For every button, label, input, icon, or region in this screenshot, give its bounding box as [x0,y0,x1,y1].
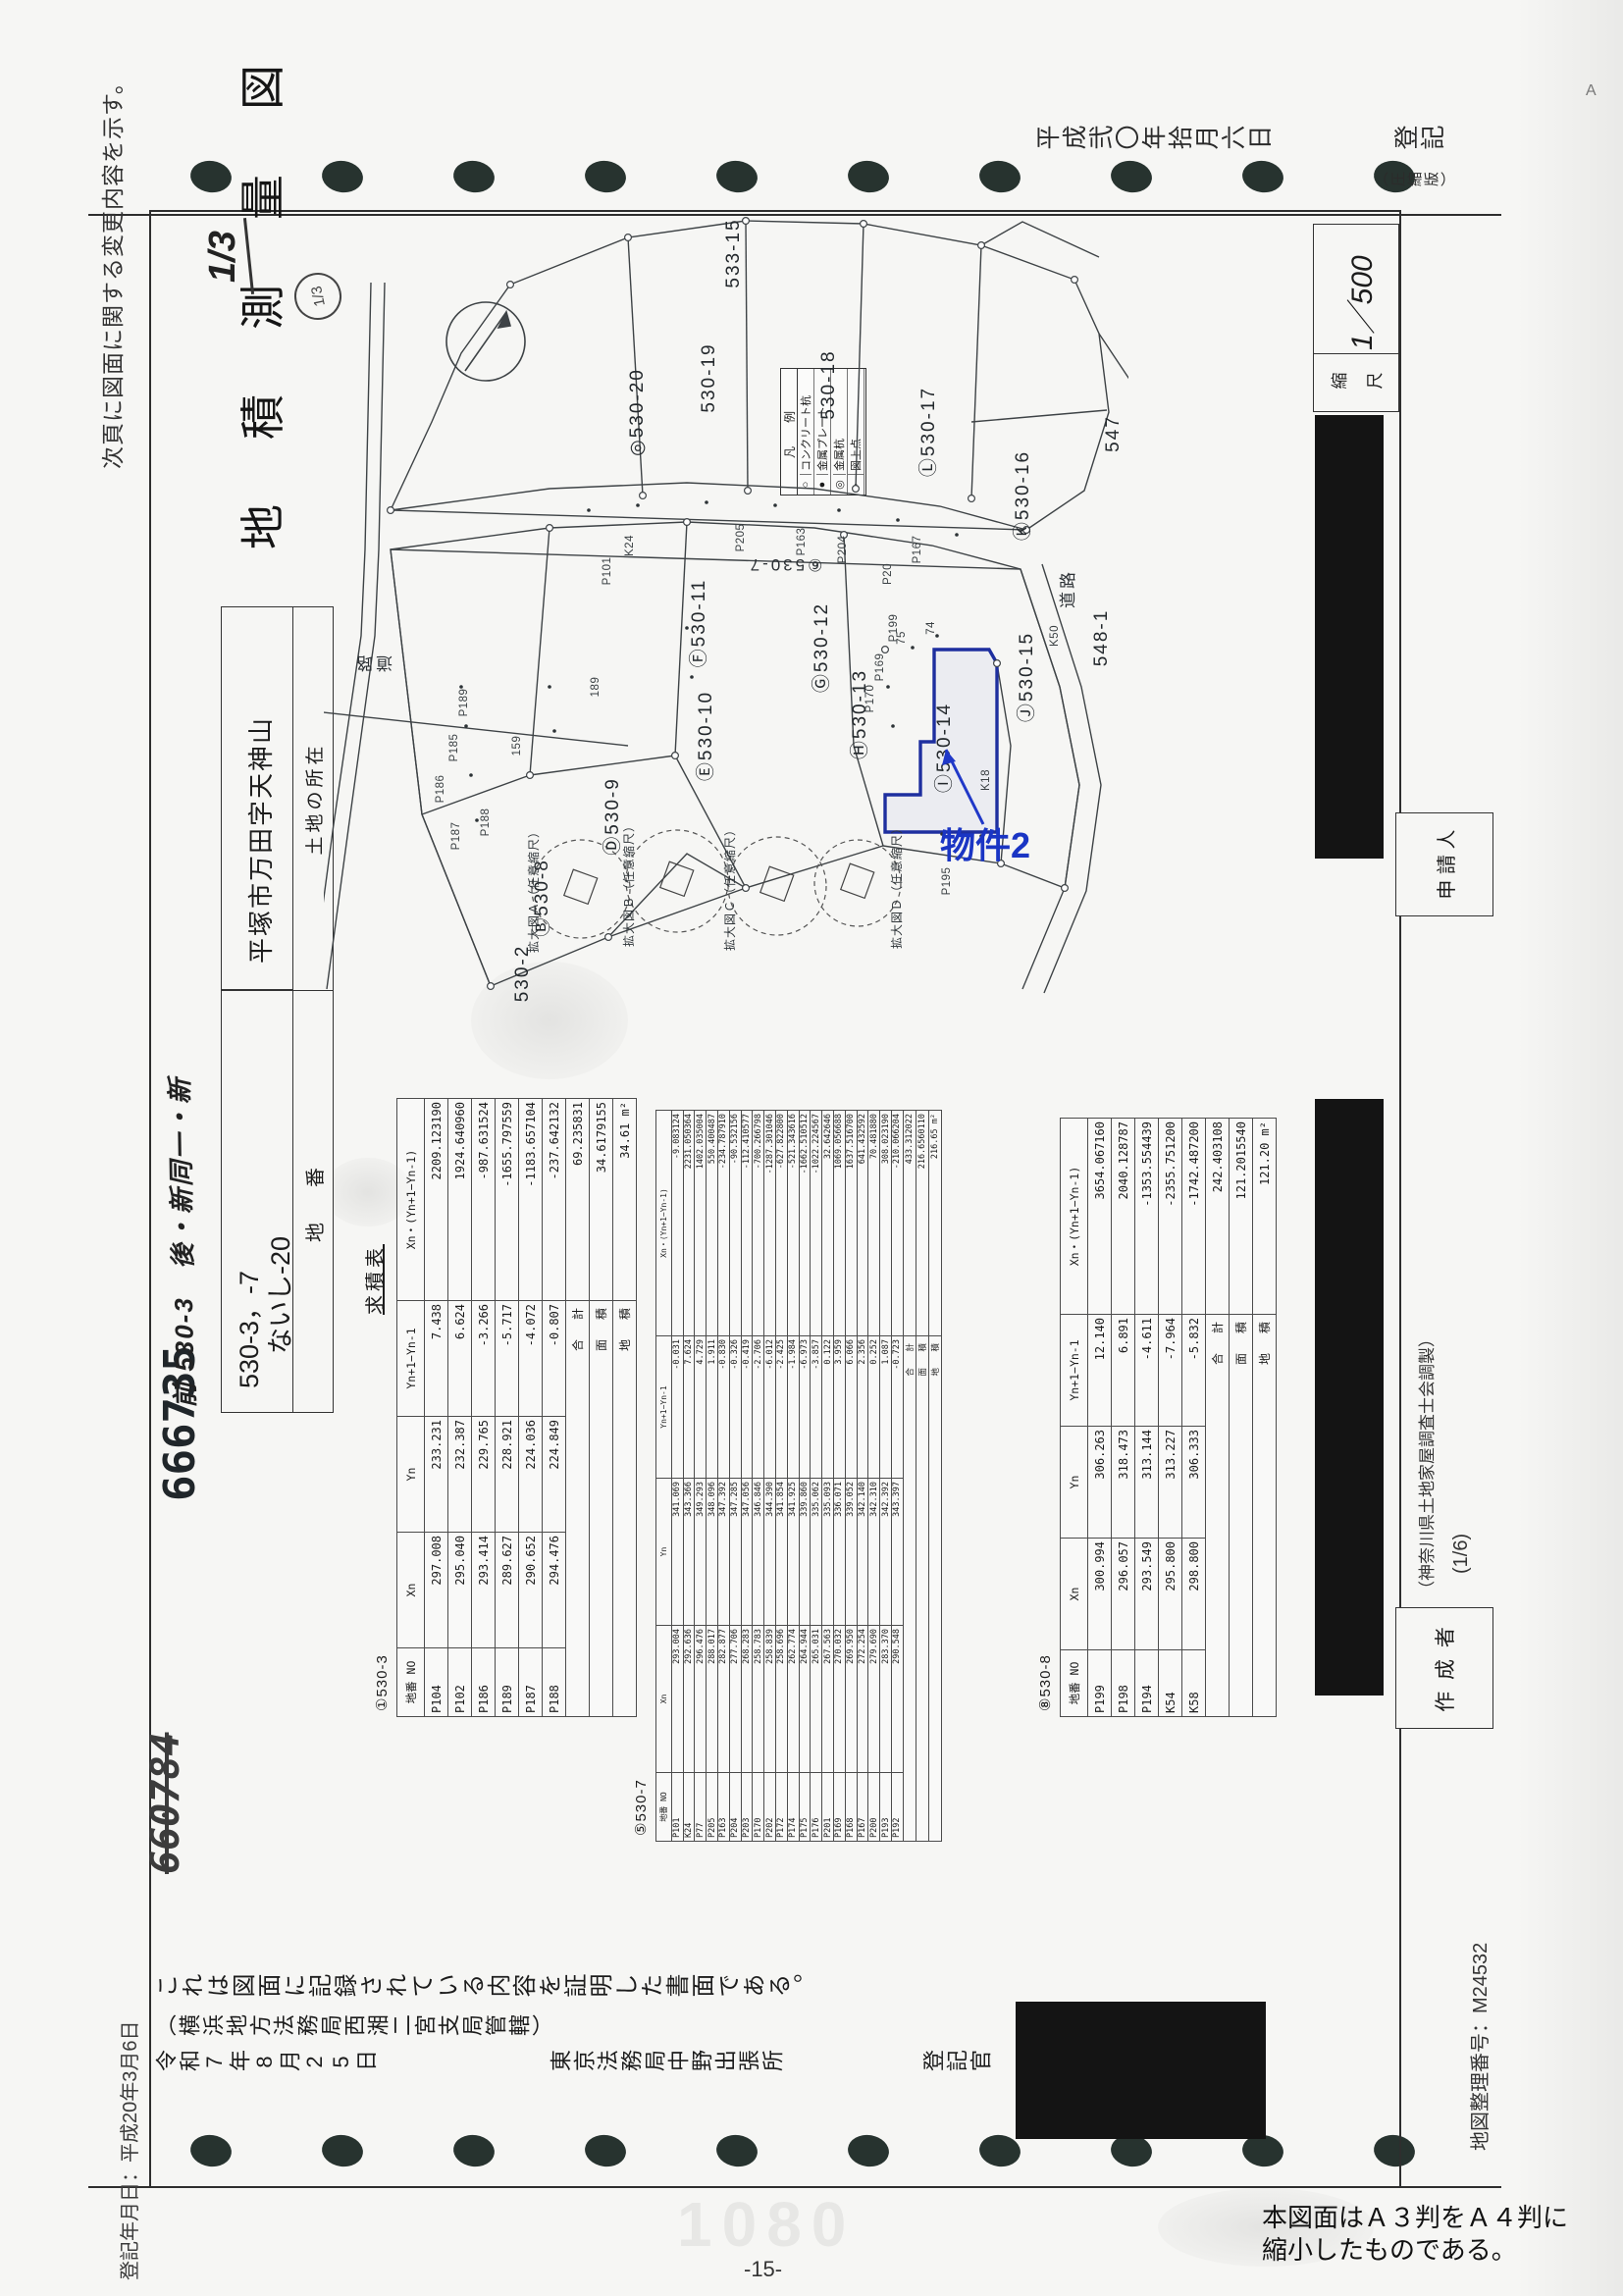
coordinate-value: 348.096 [707,1479,718,1626]
old-drawing-number: 660784 [143,1733,188,1875]
registration-date-note: 登記年月日：平成20年3月6日 [114,2021,142,2281]
coordinate-value: 342.140 [857,1479,868,1626]
map-label: P204 [837,535,849,563]
map-label: 530-19 [699,342,719,412]
coordinate-value: 0.252 [868,1336,880,1479]
stamp-toki: 登記 [1393,122,1462,157]
sum-label: 合 計 [1206,1315,1230,1717]
point-name: P175 [799,1773,811,1842]
certificate-office: 東京法務局中野出張所 [550,2047,903,2078]
coordinate-value: 339.860 [799,1479,811,1626]
coordinate-value: -0.723 [891,1336,903,1479]
bukken-label: 物件2 [940,825,1030,865]
coordinate-value: 2040.128787 [1112,1119,1135,1315]
redaction-officer-name [1016,2002,1266,2139]
coordinate-value: 7.438 [425,1301,448,1417]
point-name: K58 [1182,1650,1206,1717]
coordinate-value: 293.414 [472,1533,496,1648]
map-label: K24 [624,535,636,556]
map-label: P170 [864,685,876,713]
coordinate-value: -1742.487200 [1182,1119,1206,1315]
coordinate-value: 279.690 [868,1626,880,1773]
page-number: -15- [744,2257,782,2282]
coordinate-value: 342.310 [868,1479,880,1626]
coordinate-value: 641.432592 [857,1111,868,1336]
enlargement-circle [626,830,728,932]
point-name: P198 [1112,1650,1135,1717]
coordinate-value: 296.057 [1112,1539,1135,1650]
coordinate-value: -1287.301046 [764,1111,776,1336]
coordinate-value: 336.071 [833,1479,845,1626]
coordinate-value: 293.549 [1135,1539,1159,1650]
coordinate-value: 343.366 [683,1479,695,1626]
coordinate-value: 265.031 [811,1626,822,1773]
map-label: Ⓚ530-16 [1012,450,1033,541]
coordinate-value: 306.333 [1182,1427,1206,1539]
certificate-statement: これは図面に記録されている内容を証明した書面である。 [155,1971,862,2006]
point-name: P187 [519,1648,543,1717]
table-header: Yn+1−Yn-1 [397,1301,425,1417]
table-header: Xn・(Yn+1−Yn-1) [397,1099,425,1301]
chiban-label: 地 番 [292,989,334,1413]
coordinate-value: 3654.067160 [1088,1119,1112,1315]
point-name: P172 [775,1773,787,1842]
sum-label: 合 計 [903,1336,916,1842]
map-label: ◎530-20 [627,368,648,456]
enlargement-detail [841,863,874,898]
map-label: 548-1 [1091,609,1112,667]
sum-value: 34.61 m² [613,1099,637,1301]
coordinate-value: 313.144 [1135,1427,1159,1539]
coordinate-value: 2209.123190 [425,1099,448,1301]
map-label: P20 [882,563,894,585]
coordinate-value: 295.800 [1159,1539,1182,1650]
table-header: 地番 NO [397,1648,425,1717]
sum-label: 面 積 [590,1301,613,1717]
map-label: 189 [590,677,602,698]
cadastral-map: ◎530-20530-19533-15530-18Ⓛ530-17Ⓚ530-165… [324,216,1128,1011]
certificate-officer-title: 登記官 [922,2047,1011,2078]
reduction-note-line1: 本図面はＡ３判をＡ４判に [1262,2202,1568,2234]
coordinate-value: -2.706 [753,1336,764,1479]
coordinate-value: -521.343616 [787,1111,799,1336]
coordinate-value: -210.066204 [891,1111,903,1336]
map-label: P169 [874,653,886,682]
next-page-note: 次頁に図面に関する変更内容を示す。 [94,71,128,469]
coordinate-value: 269.950 [845,1626,857,1773]
scale-label: 縮 尺 [1314,353,1398,411]
coordinate-value: 335.093 [822,1479,834,1626]
reduction-note-line2: 縮小したものである。 [1262,2234,1568,2267]
enlargement-detail [564,869,598,904]
stamp-date: 平成弐〇年拾月六日 [1035,122,1359,157]
map-label: P167 [912,536,923,564]
coordinate-value: 308.023190 [880,1111,892,1336]
scale-box: 縮 尺 1／500 [1313,224,1399,412]
coordinate-value: 6.066 [845,1336,857,1479]
enlargement-detail [660,861,694,896]
coordinate-value: 268.283 [741,1626,753,1773]
map-label: 547 [1103,415,1124,452]
map-label: 道路 [353,653,393,672]
coordinate-value: 306.263 [1088,1427,1112,1539]
map-label: P101 [602,557,613,586]
sum-value: 433.312022 [903,1111,916,1336]
sum-value: 242.403108 [1206,1119,1230,1315]
coordinate-value: 297.008 [425,1533,448,1648]
coordinate-value: 335.062 [811,1479,822,1626]
point-name: P176 [811,1773,822,1842]
point-name: P174 [787,1773,799,1842]
coordinate-value: -3.266 [472,1301,496,1417]
coordinate-value: 347.285 [729,1479,741,1626]
map-label: Ⓗ530-13 [849,669,870,759]
map-number: 地図整理番号：M24532 [1464,1943,1492,2151]
map-label: Ⓖ530-12 [811,602,832,693]
coordinate-value: 342.392 [880,1479,892,1626]
coordinate-value: -2.425 [775,1336,787,1479]
coordinate-value: 224.849 [543,1417,566,1533]
map-label: K50 [1049,625,1061,647]
certificate-date: 令和7年8月25日 [155,2047,400,2078]
point-name: P170 [753,1773,764,1842]
coordinate-value: 341.069 [671,1479,683,1626]
map-label: P189 [458,689,470,717]
coordinate-value: 346.846 [753,1479,764,1626]
coordinate-value: -0.326 [729,1336,741,1479]
coordinate-value: -1662.510512 [799,1111,811,1336]
map-label: 159 [511,736,523,757]
coordinate-value: -4.072 [519,1301,543,1417]
coordinate-value: 290.652 [519,1533,543,1648]
coordinate-value: -6.973 [799,1336,811,1479]
coordinate-value: 1402.035004 [695,1111,707,1336]
point-name: P202 [764,1773,776,1842]
coordinate-value: 343.397 [891,1479,903,1626]
coordinate-value: -0.419 [741,1336,753,1479]
table-header: Xn・(Yn+1−Yn-1) [1061,1119,1088,1315]
coordinate-table: 地番 NOXnYnYn+1−Yn-1Xn・(Yn+1−Yn-1)P101293.… [655,1110,942,1842]
sum-value: 121.2015540 [1230,1119,1253,1315]
point-name: P101 [671,1773,683,1842]
sum-label: 面 積 [916,1336,928,1842]
author-label: 作 成 者 [1395,1607,1493,1729]
map-label: Ⓕ530-11 [688,579,709,668]
scanned-survey-document: 1080 A 登記年月日：平成20年3月6日 660784 666735 これは… [0,0,1623,2296]
coordinate-value: 294.476 [543,1533,566,1648]
coordinate-value: -4.611 [1135,1315,1159,1427]
coordinate-value: 2.356 [857,1336,868,1479]
coordinate-value: 267.563 [822,1626,834,1773]
sum-value: 121.20 m² [1253,1119,1277,1315]
table-header: Yn+1−Yn-1 [1061,1315,1088,1427]
coordinate-value: 258.839 [764,1626,776,1773]
point-name: P203 [741,1773,753,1842]
surveyor-note: （神奈川県土地家屋調査士会調製） [1413,1331,1438,1597]
point-name: P192 [891,1773,903,1842]
coordinate-value: -1183.657104 [519,1099,543,1301]
coordinate-value: -6.012 [764,1336,776,1479]
coordinate-value: -987.631524 [472,1099,496,1301]
map-label: Ⓓ530-9 [602,777,623,856]
sum-value: 69.235831 [566,1099,590,1301]
coordinate-value: -1022.224567 [811,1111,822,1336]
coordinate-value: 7.624 [683,1336,695,1479]
coordinate-value: 318.473 [1112,1427,1135,1539]
point-name: K54 [1159,1650,1182,1717]
map-label: ⑥530-7 [748,555,823,574]
point-name: P167 [857,1773,868,1842]
coordinate-value: 270.032 [833,1626,845,1773]
coordinate-value: 32.642646 [822,1111,834,1336]
coordinate-value: 550.400487 [707,1111,718,1336]
coordinate-value: -112.410577 [741,1111,753,1336]
coordinate-value: -3.857 [811,1336,822,1479]
coordinate-value: -700.266798 [753,1111,764,1336]
coordinate-value: -5.832 [1182,1315,1206,1427]
map-label: P188 [480,809,492,837]
coordinate-value: -5.717 [496,1301,519,1417]
point-name: P104 [425,1648,448,1717]
table-header: 地番 NO [656,1773,672,1842]
map-label: P187 [450,822,462,851]
coordinate-value: -237.642132 [543,1099,566,1301]
sum-label: 地 積 [613,1301,637,1717]
table-header: Yn+1−Yn-1 [656,1336,672,1479]
document-title: 地 積 測 量 図 [228,55,292,549]
stamp-paren: （圧縮版） [1374,170,1492,190]
point-name: P193 [880,1773,892,1842]
sum-label: 面 積 [1230,1315,1253,1717]
coordinate-value: 1.911 [707,1336,718,1479]
coordinate-value: 300.994 [1088,1539,1112,1650]
coordinate-value: 6.891 [1112,1315,1135,1427]
coordinate-value: -7.964 [1159,1315,1182,1427]
point-name: P163 [717,1773,729,1842]
point-name: P194 [1135,1650,1159,1717]
coordinate-value: 347.392 [717,1479,729,1626]
point-name: P200 [868,1773,880,1842]
point-name: P77 [695,1773,707,1842]
coordinate-value: 1924.640960 [448,1099,472,1301]
table-header: Xn [1061,1539,1088,1650]
coordinate-value: 341.854 [775,1479,787,1626]
table-header: Yn [1061,1427,1088,1539]
sum-value: 216.65 m² [928,1111,941,1336]
coordinate-value: 344.390 [764,1479,776,1626]
sum-value: 34.6179155 [590,1099,613,1301]
map-label: P185 [448,734,460,762]
coordinate-value: 347.056 [741,1479,753,1626]
map-label: Ⓛ530-17 [917,387,939,477]
map-label: 拡大図Ｂ（任意縮尺） [621,819,636,947]
coordinate-table: 地番 NOXnYnYn+1−Yn-1Xn・(Yn+1−Yn-1)P104297.… [396,1098,637,1717]
point-name: P199 [1088,1650,1112,1717]
coordinate-value: -1655.797559 [496,1099,519,1301]
point-name: P201 [822,1773,834,1842]
map-label: P186 [435,775,446,804]
table-caption: ①530-3 [373,1654,391,1711]
coordinate-value: 264.944 [799,1626,811,1773]
coordinate-value: 349.293 [695,1479,707,1626]
coordinate-value: 1069.056688 [833,1111,845,1336]
coordinate-value: 292.636 [683,1626,695,1773]
coordinate-value: -2355.751200 [1159,1119,1182,1315]
coordinate-value: 283.370 [880,1626,892,1773]
sum-label: 地 積 [928,1336,941,1842]
sum-value: 216.6560110 [916,1111,928,1336]
coordinate-value: 1637.516700 [845,1111,857,1336]
point-name: P169 [833,1773,845,1842]
map-label: 拡大図Ａ（任意縮尺） [526,825,541,953]
page-fraction-handwritten: 1/3 [202,231,244,283]
coordinate-table: 地番 NOXnYnYn+1−Yn-1Xn・(Yn+1−Yn-1)P199300.… [1060,1118,1277,1717]
coordinate-value: 290.548 [891,1626,903,1773]
map-label: 74 [925,621,937,635]
coordinate-value: -0.807 [543,1301,566,1417]
coordinate-value: -0.830 [717,1336,729,1479]
table-header: 地番 NO [1061,1650,1088,1717]
table-caption: ⑤530-7 [632,1779,650,1836]
location-value: 平塚市万田字天神山 [241,716,278,964]
point-name: P204 [729,1773,741,1842]
map-label: 75 [896,631,908,645]
coordinate-value: 298.800 [1182,1539,1206,1650]
coordinate-value: 258.696 [775,1626,787,1773]
point-name: P102 [448,1648,472,1717]
coordinate-value: 233.231 [425,1417,448,1533]
table-header: Yn [397,1417,425,1533]
table-caption: ⑧530-8 [1036,1654,1054,1711]
redaction-author-name [1315,1099,1384,1696]
map-label: 拡大図Ｄ（任意縮尺） [889,821,904,949]
coordinate-value: 12.140 [1088,1315,1112,1427]
coordinate-value: 293.004 [671,1626,683,1773]
coordinate-value: 1.087 [880,1336,892,1479]
reduction-note: 本図面はＡ３判をＡ４判に 縮小したものである。 [1262,2202,1568,2266]
coordinate-value: -9.083124 [671,1111,683,1336]
frame-line-extension [88,2186,1501,2188]
coordinate-value: 295.040 [448,1533,472,1648]
applicant-label: 申 請 人 [1395,812,1493,916]
coordinate-value: 339.052 [845,1479,857,1626]
coordinate-value: 3.959 [833,1336,845,1479]
coordinate-value: 228.921 [496,1417,519,1533]
coordinate-value: 229.765 [472,1417,496,1533]
sum-label: 合 計 [566,1301,590,1717]
coordinate-value: 341.925 [787,1479,799,1626]
coordinate-value: 258.783 [753,1626,764,1773]
scale-value: 1／500 [1337,255,1381,350]
coordinate-value: -90.532156 [729,1111,741,1336]
map-label: 拡大図Ｃ（任意縮尺） [722,823,737,951]
coordinate-value: 2231.050364 [683,1111,695,1336]
coordinate-value: 277.706 [729,1626,741,1773]
map-label: 533-15 [723,218,744,287]
point-name: K24 [683,1773,695,1842]
map-label: P205 [735,524,747,552]
table-header: Yn [656,1479,672,1626]
point-name: P189 [496,1648,519,1717]
chiban-value-line2: ないし-20 [259,1236,297,1354]
table-header: Xn・(Yn+1−Yn-1) [656,1111,672,1336]
kyusekihyo-label: 求積表 [359,1244,388,1315]
coordinate-value: 70.481880 [868,1111,880,1336]
coordinate-value: 282.877 [717,1626,729,1773]
coordinate-value: 6.624 [448,1301,472,1417]
coordinate-value: 313.227 [1159,1427,1182,1539]
handwritten-revision-note: 前 530-3 後・新同一・新 [160,1076,202,1408]
sum-label: 地 積 [1253,1315,1277,1717]
sheet-fraction: (1/6) [1450,1534,1473,1574]
bukken-annotation: 物件2 [913,726,1089,883]
coordinate-value: -627.822800 [775,1111,787,1336]
point-name: P205 [707,1773,718,1842]
certificate-jurisdiction: （横浜地方法務局西湘二宮支局管轄） [155,2011,705,2043]
coordinate-value: 296.476 [695,1626,707,1773]
coordinate-value: -1.984 [787,1336,799,1479]
point-name: P168 [845,1773,857,1842]
point-name: P186 [472,1648,496,1717]
map-label: Ⓔ530-10 [695,691,716,781]
coordinate-value: 232.387 [448,1417,472,1533]
coordinate-value: 224.036 [519,1417,543,1533]
coordinate-value: 262.774 [787,1626,799,1773]
coordinate-value: -0.031 [671,1336,683,1479]
redaction-applicant-name [1315,415,1384,859]
coordinate-value: -1353.554439 [1135,1119,1159,1315]
enlargement-circle [814,840,901,926]
map-label: Ⓙ530-15 [1016,632,1037,722]
enlargement-detail [760,866,794,901]
table-header: Xn [397,1533,425,1648]
map-label: 道路 [1059,569,1077,608]
coordinate-value: 289.627 [496,1533,519,1648]
table-header: Xn [656,1626,672,1773]
point-name: P188 [543,1648,566,1717]
coordinate-value: 272.254 [857,1626,868,1773]
north-arrow [446,302,525,381]
coordinate-value: 4.729 [695,1336,707,1479]
coordinate-value: 288.017 [707,1626,718,1773]
coordinate-value: -234.787910 [717,1111,729,1336]
map-label: 530-18 [818,349,839,419]
coordinate-value: 0.122 [822,1336,834,1479]
map-label: P163 [796,528,808,556]
